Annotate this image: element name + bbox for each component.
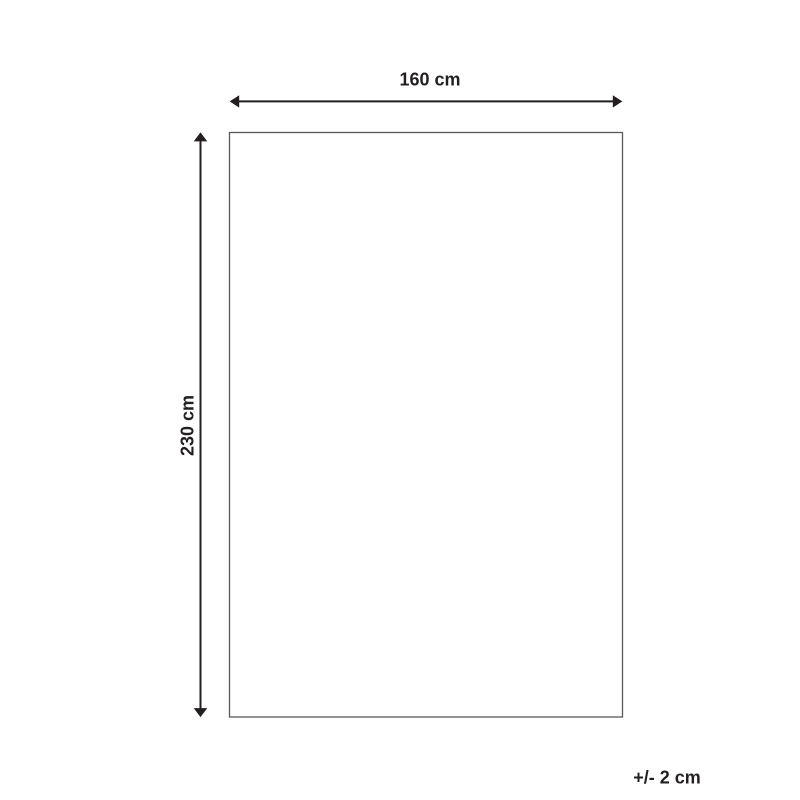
svg-text:+/- 2 cm: +/- 2 cm <box>633 768 701 788</box>
svg-text:230 cm: 230 cm <box>178 395 198 456</box>
svg-text:160 cm: 160 cm <box>399 70 460 90</box>
